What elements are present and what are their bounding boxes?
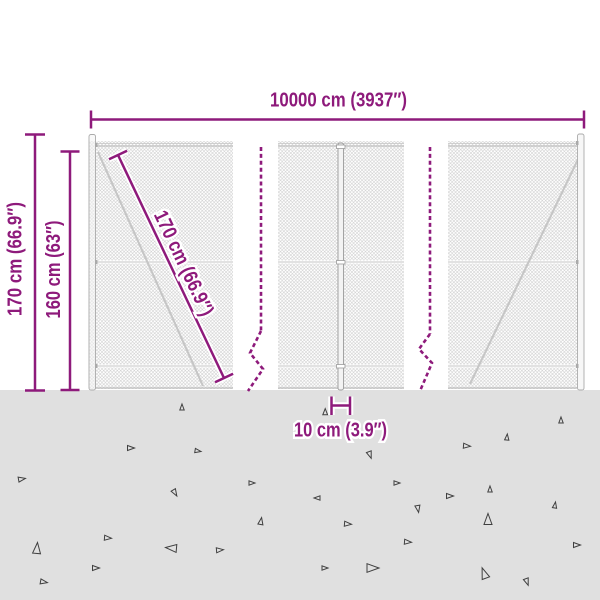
svg-text:160 cm (63″): 160 cm (63″) [43, 221, 65, 319]
svg-text:10000 cm (3937″): 10000 cm (3937″) [270, 90, 407, 112]
svg-text:170 cm (66.9″): 170 cm (66.9″) [5, 202, 27, 316]
svg-text:10 cm (3.9″): 10 cm (3.9″) [294, 420, 387, 442]
